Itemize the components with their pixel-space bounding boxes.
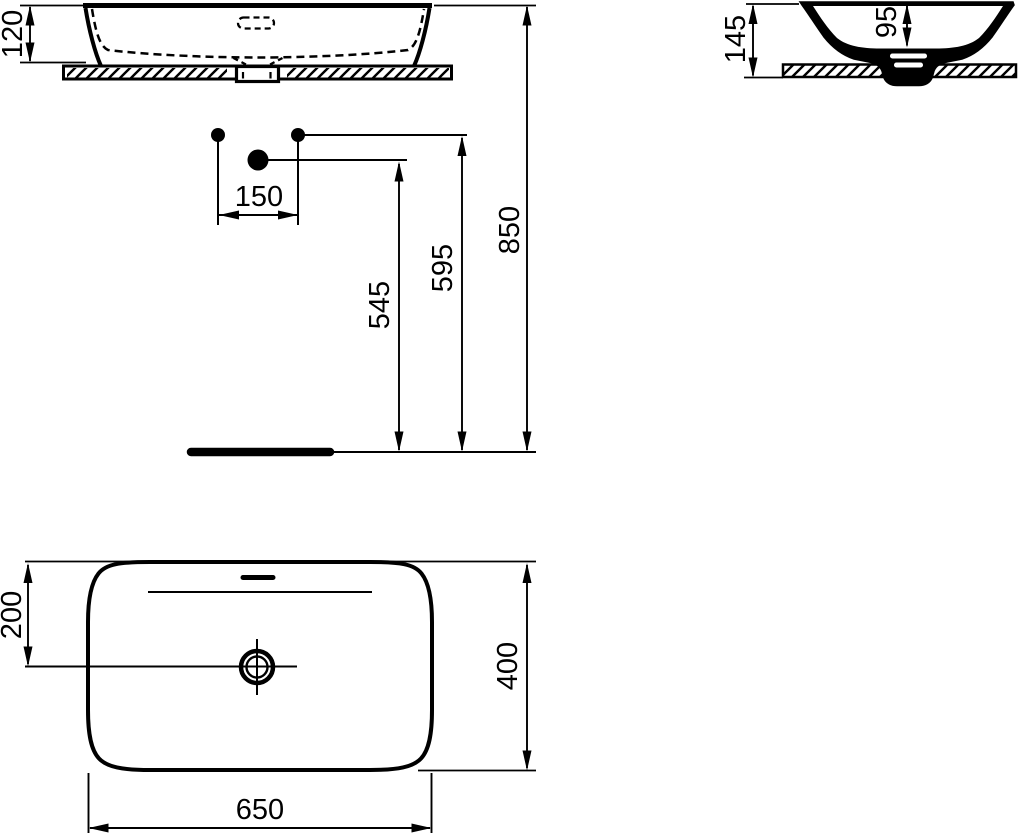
dim-label-595: 595 [427, 244, 459, 292]
countertop-hatch-right [931, 65, 1016, 78]
dimension-650: 650 [89, 773, 432, 833]
countertop-hatch-left [783, 65, 885, 78]
supply-connection-dot-left [211, 128, 225, 142]
waste-funnel-hidden-line [234, 58, 283, 65]
dim-label-95: 95 [871, 6, 903, 38]
countertop-hatch-left [67, 68, 227, 78]
dim-label-150: 150 [235, 181, 283, 213]
dim-label-545: 545 [364, 281, 396, 329]
inner-bowl-hidden-line [92, 9, 424, 58]
technical-drawing-sheet: 120 145 95 150 [0, 0, 1024, 836]
dimension-150: 150 [219, 181, 298, 220]
dimension-400: 400 [492, 563, 532, 771]
dim-label-200: 200 [0, 591, 28, 639]
dim-label-650: 650 [236, 794, 284, 826]
dim-label-145: 145 [720, 15, 752, 63]
waste-slit-upper [890, 54, 927, 59]
overflow-hidden-outline [238, 18, 274, 29]
dim-label-850: 850 [494, 206, 526, 254]
waste-slit-lower [894, 63, 923, 68]
countertop-hatch-right [287, 68, 449, 78]
dimension-595: 595 [427, 136, 467, 452]
dimension-200: 200 [0, 563, 33, 667]
dim-label-400: 400 [492, 642, 524, 690]
dimension-120: 120 [0, 6, 86, 63]
technical-drawing-canvas: 120 145 95 150 [0, 0, 1024, 836]
dim-label-120: 120 [0, 10, 29, 58]
front-view [64, 6, 452, 82]
top-view [25, 562, 536, 771]
dimension-545: 545 [364, 162, 404, 452]
